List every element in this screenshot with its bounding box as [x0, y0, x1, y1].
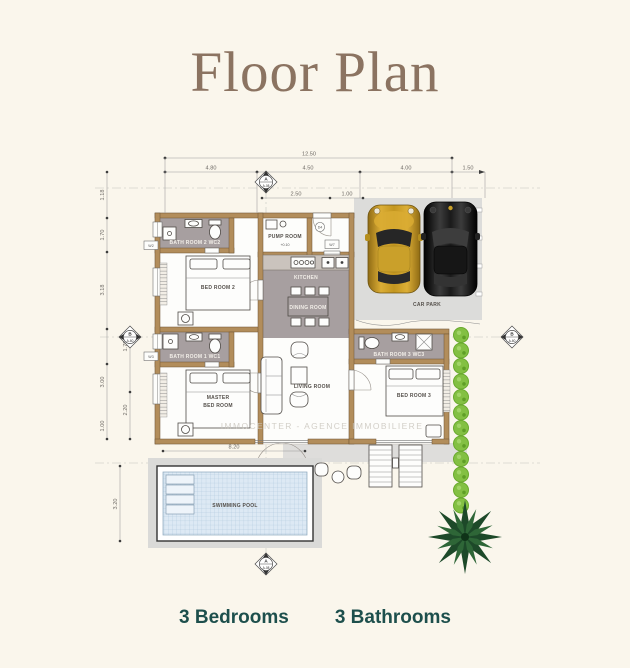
dim-left-7: 1.00 — [100, 421, 106, 432]
stove-icon — [291, 257, 315, 268]
room-label-bath1: BATH ROOM 1 WC1 — [170, 354, 221, 360]
room-label-master-1: MASTER — [207, 395, 230, 401]
section-marker-a-top: A A-08 — [255, 171, 277, 193]
gold-car-icon — [365, 205, 423, 293]
dim-top-3: 4.00 — [401, 166, 412, 172]
kitchen-counter — [263, 255, 349, 270]
room-label-pool: SWIMMING POOL — [212, 503, 257, 509]
room-label-living: LIVING ROOM — [294, 384, 330, 390]
floor-plan-page: Floor Plan — [0, 0, 630, 668]
tag-w2: W2 — [148, 244, 153, 248]
bedrooms-count: 3 Bedrooms — [179, 607, 289, 629]
section-a-sheet: A-08 — [263, 566, 270, 570]
floor-plan-drawing: BATH ROOM 2 WC2 BED ROOM 2 PUMP ROOM +0.… — [0, 130, 630, 600]
dim-left-6: 2.20 — [123, 405, 129, 416]
armchair2-icon — [290, 392, 308, 407]
dim-left-3: 3.18 — [100, 285, 106, 296]
room-label-master-2: BED ROOM — [203, 403, 233, 409]
section-a-sheet: A-08 — [263, 184, 270, 188]
room-label-bed3: BED ROOM 3 — [397, 393, 431, 399]
plan-area: BATH ROOM 2 WC2 BED ROOM 2 PUMP ROOM +0.… — [0, 130, 630, 605]
bathrooms-count: 3 Bathrooms — [335, 607, 451, 629]
dim-top-2: 4.50 — [303, 166, 314, 172]
dim-left-1: 1.18 — [100, 190, 106, 201]
dim-left-2: 1.70 — [100, 230, 106, 241]
room-label-pump: PUMP ROOM — [268, 234, 302, 240]
room-label-bath2: BATH ROOM 2 WC2 — [170, 240, 221, 246]
dim-top-1: 4.80 — [206, 166, 217, 172]
section-marker-b-right: B A-60 — [501, 326, 523, 348]
page-title: Floor Plan — [0, 40, 630, 105]
summary-row: 3 Bedrooms 3 Bathrooms — [0, 607, 630, 629]
watermark: IMMOCENTER - AGENCE IMMOBILIERE — [221, 421, 424, 431]
dimension-lines-left: 1.18 1.70 3.18 1.70 3.00 2.20 1.00 — [100, 171, 131, 441]
dim-pool-height: 3.20 — [113, 499, 119, 510]
section-marker-a-bottom: A A-08 — [255, 553, 277, 575]
room-label-bed2: BED ROOM 2 — [201, 285, 235, 291]
black-car-icon — [421, 202, 480, 296]
sofa-icon — [261, 357, 282, 414]
level-annotation: +0.10 — [280, 243, 289, 247]
armchair-icon — [291, 342, 308, 358]
dim-pool-width: 8.20 — [229, 445, 240, 451]
tag-d4: D4 — [318, 226, 323, 230]
coffee-table-icon — [291, 367, 307, 384]
room-label-dining: DINING ROOM — [289, 305, 326, 311]
dim-left-5: 3.00 — [100, 377, 106, 388]
section-b-sheet: A-60 — [127, 339, 134, 343]
palm-tree-icon — [428, 500, 502, 574]
dim-top-total: 12.50 — [302, 152, 316, 158]
hedge-row — [454, 328, 469, 514]
tag-w3: W3 — [148, 355, 153, 359]
dim-pump-1: 2.50 — [291, 192, 302, 198]
room-label-carpark: CAR PARK — [413, 302, 441, 308]
dim-top-4: 1.50 — [463, 166, 474, 172]
tag-w7: W7 — [329, 243, 334, 247]
dim-pump-2: 1.00 — [342, 192, 353, 198]
room-label-kitchen: KITCHEN — [294, 275, 318, 281]
room-label-bath3: BATH ROOM 3 WC3 — [374, 352, 425, 358]
section-b-sheet: A-60 — [509, 339, 516, 343]
